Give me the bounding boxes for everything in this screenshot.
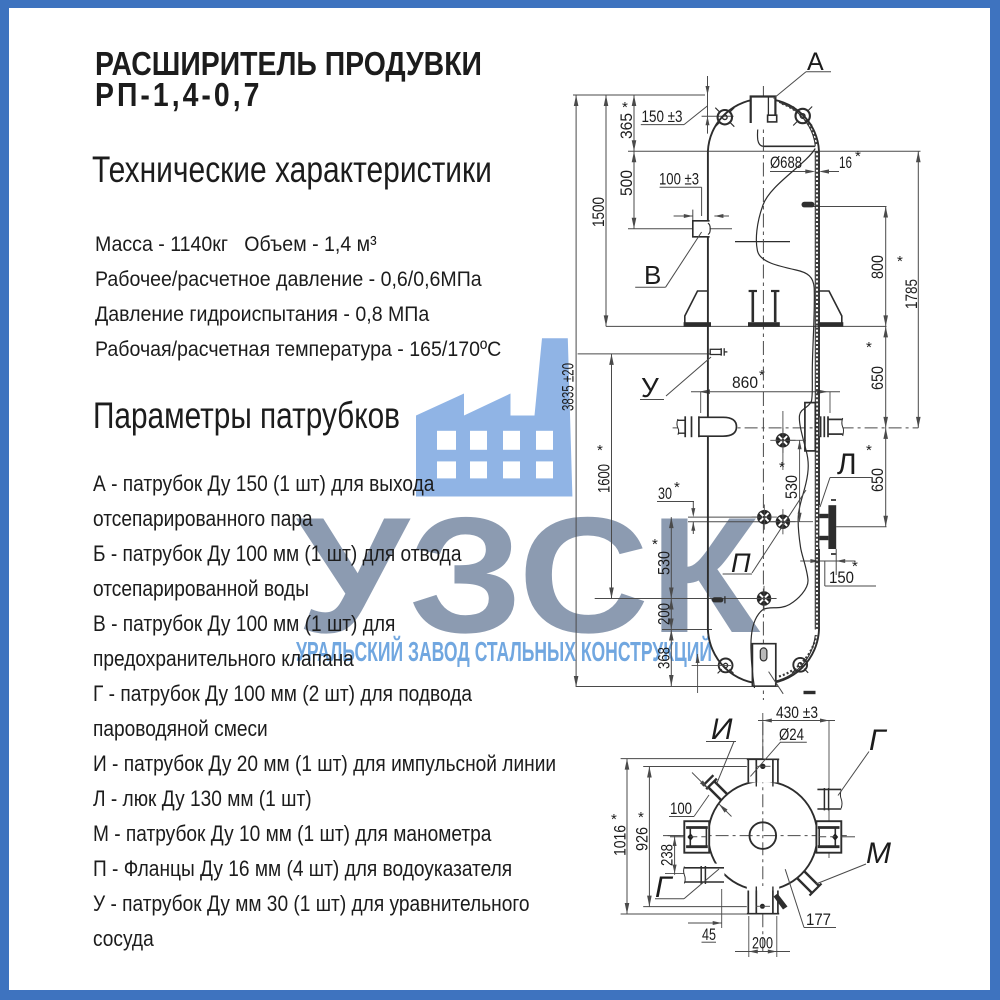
svg-text:*: *: [852, 558, 858, 575]
svg-text:*: *: [855, 148, 861, 165]
svg-text:150: 150: [829, 568, 854, 587]
svg-text:650: 650: [868, 468, 887, 492]
svg-text:*: *: [622, 99, 628, 116]
svg-text:1500: 1500: [589, 197, 608, 227]
svg-text:Г: Г: [869, 724, 888, 757]
svg-text:100: 100: [670, 799, 692, 818]
svg-text:*: *: [779, 459, 785, 476]
svg-text:*: *: [638, 809, 644, 826]
svg-text:430 ±3: 430 ±3: [776, 703, 818, 722]
svg-text:238: 238: [658, 844, 677, 866]
svg-text:16: 16: [839, 153, 852, 172]
svg-text:В: В: [644, 260, 661, 290]
svg-text:368: 368: [655, 647, 674, 669]
svg-text:800: 800: [868, 255, 887, 279]
svg-text:530: 530: [782, 475, 801, 499]
svg-text:*: *: [759, 367, 765, 384]
svg-text:Ø688: Ø688: [770, 153, 802, 172]
svg-text:М: М: [866, 837, 891, 870]
svg-text:*: *: [597, 442, 603, 459]
svg-text:1016: 1016: [611, 825, 630, 856]
svg-text:45: 45: [702, 925, 716, 944]
svg-text:*: *: [652, 536, 658, 553]
svg-text:200: 200: [655, 603, 674, 625]
svg-text:30: 30: [658, 484, 672, 503]
svg-text:А: А: [807, 48, 824, 76]
svg-text:500: 500: [617, 170, 636, 196]
svg-text:150 ±3: 150 ±3: [642, 107, 683, 126]
svg-text:*: *: [674, 479, 680, 496]
svg-text:650: 650: [868, 366, 887, 390]
svg-text:У: У: [641, 372, 659, 403]
svg-text:1600: 1600: [595, 464, 614, 493]
svg-text:*: *: [866, 339, 872, 356]
svg-text:Ø24: Ø24: [779, 725, 804, 744]
svg-text:3835 ±20: 3835 ±20: [559, 363, 578, 411]
svg-text:926: 926: [633, 827, 652, 851]
svg-text:1785: 1785: [902, 279, 921, 309]
svg-text:860: 860: [732, 373, 758, 392]
svg-text:200: 200: [752, 934, 773, 953]
svg-text:365: 365: [617, 113, 636, 139]
svg-text:177: 177: [806, 910, 831, 929]
svg-text:100 ±3: 100 ±3: [659, 170, 699, 189]
svg-text:*: *: [897, 253, 903, 270]
svg-text:*: *: [866, 442, 872, 459]
svg-text:Л: Л: [837, 448, 857, 481]
svg-text:*: *: [611, 811, 617, 828]
svg-text:530: 530: [655, 551, 674, 575]
